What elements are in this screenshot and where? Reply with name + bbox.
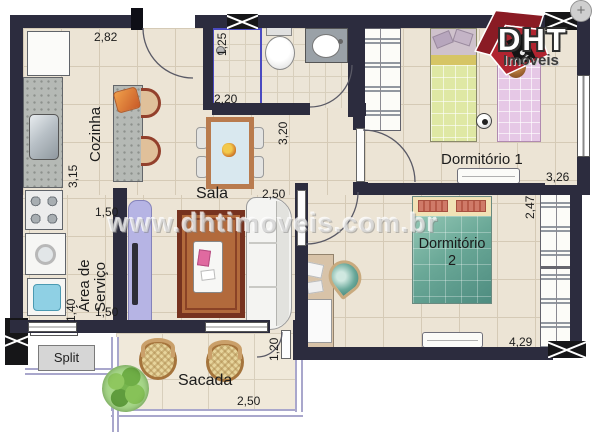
label-bedroom2-number: 2 (412, 253, 492, 270)
label-living: Sala (196, 185, 228, 203)
label-service-line1: Área de (77, 259, 93, 312)
dim-bedroom1-width: 3,26 (546, 170, 569, 184)
dim-balcony-door: 1,20 (267, 338, 281, 361)
label-balcony: Sacada (178, 372, 232, 390)
dim-kitchen-width: 2,82 (94, 30, 117, 44)
dim-shower: 1,25 (215, 33, 229, 56)
dim-kitchen-depth: 3,15 (66, 165, 80, 188)
label-bedroom2: Dormitório 2 (412, 236, 492, 270)
dim-service-bottom: 1,50 (95, 305, 118, 319)
dim-living-width: 2,50 (262, 187, 285, 201)
floor-plan: Split 2,82 Cozinha 3,15 1,25 2,20 3,20 S… (0, 0, 600, 433)
label-bedroom1: Dormitório 1 (441, 151, 523, 168)
logo-imoveis-text: Imóveis (503, 52, 559, 69)
dim-balcony-width: 2,50 (237, 394, 260, 408)
dim-living-depth: 3,20 (276, 122, 290, 145)
dim-service-side: 1,40 (64, 299, 78, 322)
label-kitchen: Cozinha (87, 107, 104, 162)
dim-bathroom-width: 2,20 (214, 92, 237, 106)
dim-bedroom2-depth: 2,47 (523, 196, 537, 219)
compass-icon: + (570, 0, 592, 22)
dim-bedroom2-width: 4,29 (509, 335, 532, 349)
watermark: www.dhtimoveis.com.br (108, 208, 439, 239)
